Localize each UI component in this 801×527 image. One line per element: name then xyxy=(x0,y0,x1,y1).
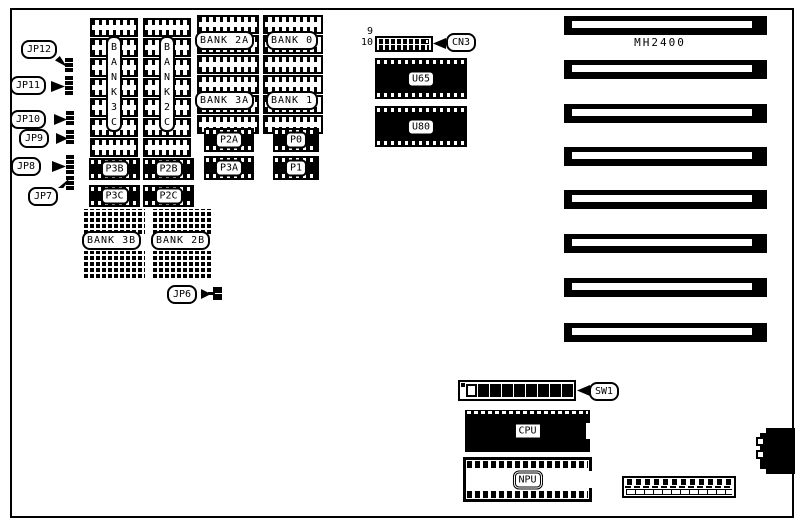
cn3-label: CN3 xyxy=(446,33,476,52)
chip-p2c-label: P2C xyxy=(154,188,182,205)
chip-p3b: P3B xyxy=(89,158,140,180)
chip-p1: P1 xyxy=(273,156,319,180)
bank0-chip xyxy=(263,55,323,74)
chip-u80: U80 xyxy=(375,106,467,147)
power-pins-bottom xyxy=(626,489,732,495)
jp10-pins xyxy=(66,111,74,125)
chip-p3b-label: P3B xyxy=(100,161,128,178)
keyboard-connector xyxy=(766,428,795,474)
power-divider xyxy=(625,486,733,488)
bank2a-chip xyxy=(197,55,259,74)
bank3b-array-lower xyxy=(84,251,145,278)
jp12-pins xyxy=(65,58,73,72)
chip-u65: U65 xyxy=(375,58,467,99)
jumper-label-jp7: JP7 xyxy=(28,187,58,206)
expansion-slot-3 xyxy=(564,104,767,123)
sw1-corner-marker xyxy=(461,383,465,387)
expansion-slot-8 xyxy=(564,323,767,342)
npu-pinrow-top xyxy=(467,461,588,468)
chip-p1-label: P1 xyxy=(285,160,307,177)
power-connector xyxy=(622,476,736,498)
jumper-label-jp9: JP9 xyxy=(19,129,49,148)
chip-npu: NPU xyxy=(463,457,592,502)
jumper-label-jp10: JP10 xyxy=(10,110,46,129)
jp11-pins xyxy=(65,76,73,95)
expansion-slot-5 xyxy=(564,190,767,209)
sw1-switches xyxy=(466,384,573,397)
bank2b-array-lower xyxy=(153,251,213,278)
motherboard-diagram: JP12 JP11 JP10 JP9 JP8 JP7 BANK3C BANK2C… xyxy=(0,0,801,527)
bank1-label: BANK 1 xyxy=(266,91,318,110)
expansion-slot-7 xyxy=(564,278,767,297)
jp6-pins xyxy=(213,287,222,300)
sw1-switch-block xyxy=(458,380,576,401)
expansion-slot-4 xyxy=(564,147,767,166)
cn3-pinrow-bottom xyxy=(379,45,429,50)
keyboard-pin-2 xyxy=(756,450,765,459)
chip-npu-label: NPU xyxy=(514,472,540,487)
bank2c-chip xyxy=(143,18,191,37)
chip-p3c-label: P3C xyxy=(100,188,128,205)
chip-p0-label: P0 xyxy=(285,132,307,149)
power-pins-top xyxy=(627,479,731,485)
chip-p2b: P2B xyxy=(143,158,194,180)
npu-notch xyxy=(586,471,592,488)
sw1-label: SW1 xyxy=(589,382,619,401)
bank2c-chip xyxy=(143,138,191,157)
expansion-slot-6 xyxy=(564,234,767,253)
bank3b-label: BANK 3B xyxy=(82,231,141,250)
chip-cpu: CPU xyxy=(465,410,590,452)
chip-p2a-label: P2A xyxy=(215,132,243,149)
bank3a-label: BANK 3A xyxy=(195,91,254,110)
chip-p3a: P3A xyxy=(204,156,254,180)
chip-p3a-label: P3A xyxy=(215,160,243,177)
chip-p0: P0 xyxy=(273,128,319,152)
jumper-label-jp12: JP12 xyxy=(21,40,57,59)
cn3-pin1-marker xyxy=(425,39,429,44)
bank3c-chip xyxy=(90,138,138,157)
cn3-pin9-number: 9 xyxy=(364,26,373,37)
sw1-switch-1-off xyxy=(466,384,477,397)
chip-p2c: P2C xyxy=(143,185,194,207)
cpu-pin-dashes xyxy=(467,411,588,414)
jumper-label-jp11: JP11 xyxy=(10,76,46,95)
cn3-header xyxy=(375,36,433,52)
jp9-pins xyxy=(66,130,74,144)
jumper-label-jp6: JP6 xyxy=(167,285,197,304)
chip-cpu-label: CPU xyxy=(513,423,541,440)
chip-u80-label: U80 xyxy=(407,118,435,135)
expansion-slot-2 xyxy=(564,60,767,79)
expansion-slot-1 xyxy=(564,16,767,35)
cn3-pinrow-top xyxy=(379,39,429,44)
chip-p3c: P3C xyxy=(89,185,140,207)
cpu-notch xyxy=(586,423,590,439)
bank2b-label: BANK 2B xyxy=(151,231,210,250)
cn3-pin10-number: 10 xyxy=(357,37,373,48)
npu-pinrow-bottom xyxy=(467,491,588,498)
bank3c-chip xyxy=(90,18,138,37)
jumper-label-jp8: JP8 xyxy=(11,157,41,176)
chip-p2b-label: P2B xyxy=(154,161,182,178)
bank3c-label: BANK3C xyxy=(106,36,122,132)
jp8-pins xyxy=(66,155,74,174)
chip-p2a: P2A xyxy=(204,128,254,152)
board-model: MH2400 xyxy=(618,37,702,48)
jp7-pins xyxy=(66,176,74,190)
keyboard-pin-1 xyxy=(756,437,765,446)
bank0-label: BANK 0 xyxy=(266,31,318,50)
chip-u65-label: U65 xyxy=(407,70,435,87)
bank2c-label: BANK2C xyxy=(159,36,175,132)
bank2a-label: BANK 2A xyxy=(195,31,254,50)
